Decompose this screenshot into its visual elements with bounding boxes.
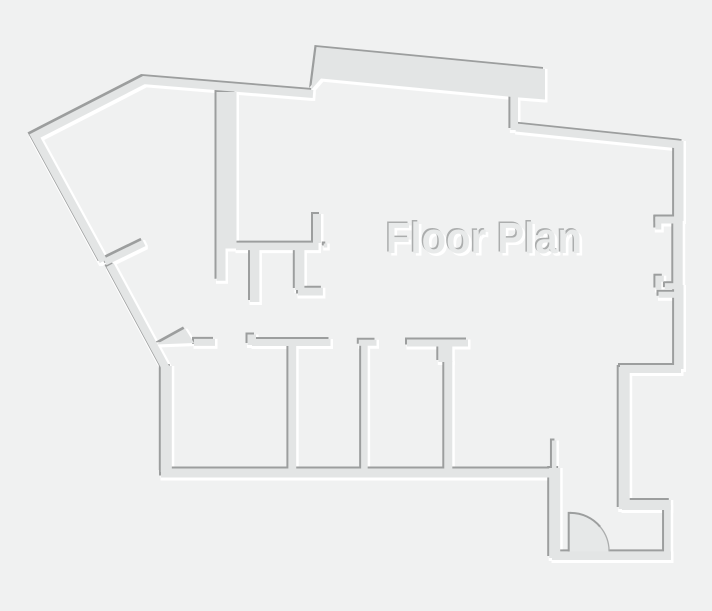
svg-text:Floor Plan: Floor Plan bbox=[386, 215, 582, 263]
